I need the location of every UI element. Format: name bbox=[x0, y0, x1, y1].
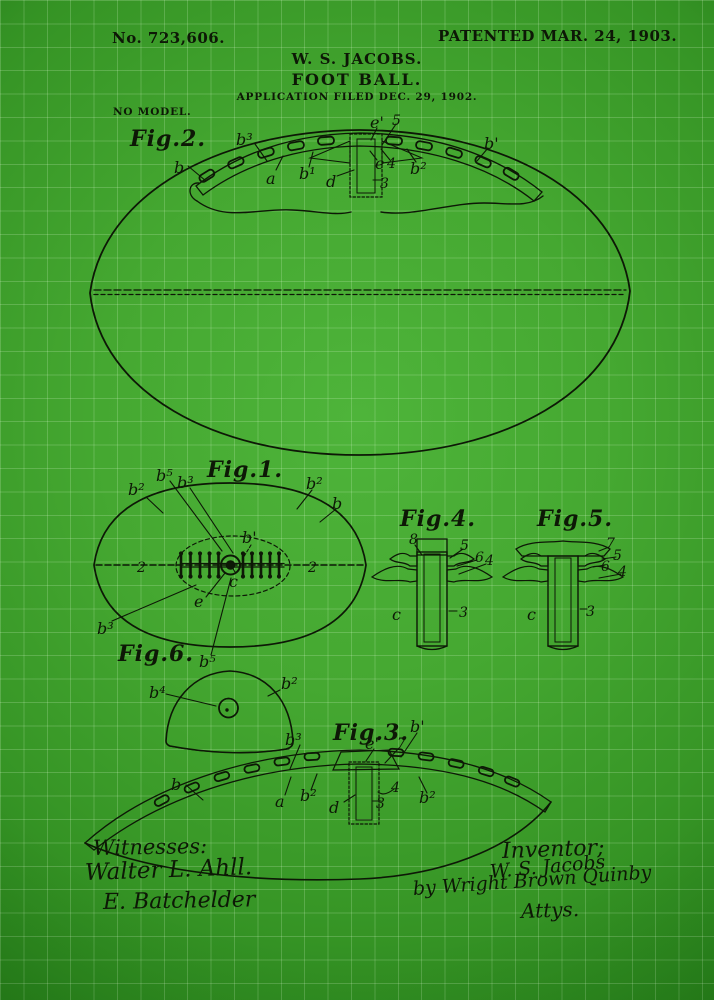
fig3-label-b3: b³ bbox=[285, 730, 302, 749]
fig1-label-b5-bottom: b⁵ bbox=[199, 652, 216, 671]
fig2-label-b-prime: b' bbox=[484, 134, 499, 153]
fig1-label-e: e bbox=[194, 592, 203, 611]
fig2-label-b1: b¹ bbox=[299, 164, 316, 183]
fig1-label-b2-top-left: b² bbox=[128, 480, 145, 499]
fig1-valve-center bbox=[226, 560, 236, 570]
fig4-stem bbox=[417, 552, 447, 646]
fig1-label-c: c bbox=[229, 572, 238, 591]
fig3-valve-outer bbox=[349, 762, 379, 824]
fig6-hole-dot bbox=[225, 708, 228, 711]
fig2-label-d: d bbox=[326, 172, 336, 191]
fig5-label-4: 4 bbox=[617, 564, 627, 580]
fig1-label-b3-bottom: b³ bbox=[97, 619, 114, 638]
witness2-signature: E. Batchelder bbox=[103, 887, 256, 915]
fig2-label-4: 4 bbox=[386, 156, 396, 172]
fig1-label-2-right: 2 bbox=[307, 560, 317, 576]
fig6-title: Fig.6. bbox=[117, 641, 194, 667]
fig4-drawing: Fig.4. 8 5 6 4 c 3 bbox=[372, 506, 494, 650]
fig1-label-b-right: b bbox=[332, 494, 342, 513]
fig6-label-b4: b⁴ bbox=[149, 683, 166, 702]
fig1-title: Fig.1. bbox=[206, 457, 283, 483]
fig2-leader-lines bbox=[188, 124, 488, 181]
fig4-label-6: 6 bbox=[475, 550, 484, 566]
fig2-title: Fig.2. bbox=[129, 126, 206, 152]
fig5-label-6: 6 bbox=[601, 559, 610, 575]
fig5-label-3: 3 bbox=[586, 604, 595, 620]
fig4-label-5: 5 bbox=[460, 538, 469, 554]
fig1-label-2-left: 2 bbox=[136, 560, 146, 576]
fig5-title: Fig.5. bbox=[536, 506, 613, 532]
fig1-label-b3-top: b³ bbox=[177, 473, 194, 492]
fig2-label-b: b bbox=[174, 158, 184, 177]
attorney-title: Attys. bbox=[521, 897, 580, 923]
fig3-label-b2-right: b² bbox=[419, 788, 436, 807]
fig3-label-e-prime: e' bbox=[365, 734, 379, 753]
patent-blueprint-page: No. 723,606. PATENTED MAR. 24, 1903. W. … bbox=[0, 0, 714, 1000]
fig5-drawing: Fig.5. 7 5 6 4 c 3 bbox=[503, 506, 627, 650]
fig2-label-3: 3 bbox=[380, 176, 389, 192]
fig4-label-4: 4 bbox=[484, 553, 494, 569]
fig4-label-c: c bbox=[392, 605, 401, 624]
fig2-label-b2: b² bbox=[410, 159, 427, 178]
fig3-label-3: 3 bbox=[376, 796, 385, 812]
fig5-stem-bore bbox=[555, 558, 571, 642]
fig2-band-end-curl bbox=[190, 183, 199, 201]
fig3-label-b-prime: b' bbox=[410, 717, 425, 736]
fig1-drawing: Fig.1. b² b⁵ b³ b² b b' c e 2 2 b³ b⁵ bbox=[94, 457, 366, 671]
fig6-bottom-edge bbox=[169, 746, 289, 753]
fig6-patch bbox=[166, 671, 293, 753]
fig2-valve-bore bbox=[357, 139, 375, 193]
fig2-label-e-prime: e' bbox=[370, 113, 384, 132]
fig2-label-b3: b³ bbox=[236, 130, 253, 149]
fig6-label-b2: b² bbox=[281, 674, 298, 693]
fig2-drawing: Fig.2. b³ b a b¹ d 3 e' 5 e 4 b² b' bbox=[90, 113, 630, 455]
fig2-label-e: e bbox=[375, 154, 384, 173]
fig3-label-d: d bbox=[329, 798, 339, 817]
fig2-label-a: a bbox=[266, 169, 276, 188]
fig4-label-3: 3 bbox=[459, 605, 468, 621]
fig6-leader-lines bbox=[166, 690, 280, 706]
fig2-ball-outline bbox=[90, 130, 630, 455]
fig5-label-5: 5 bbox=[613, 548, 622, 564]
fig2-cover-mouth-line bbox=[197, 196, 543, 214]
fig3-label-b: b bbox=[171, 775, 181, 794]
fig3-label-a: a bbox=[275, 792, 285, 811]
fig3-valve-bore bbox=[356, 767, 372, 820]
fig4-label-8: 8 bbox=[409, 532, 418, 548]
fig1-label-b-prime: b' bbox=[242, 528, 257, 547]
fig6-hole-outline bbox=[219, 699, 238, 718]
fig3-label-b2-left: b² bbox=[300, 786, 317, 805]
fig3-label-7: 7 bbox=[397, 736, 406, 752]
fig1-label-b5-top: b⁵ bbox=[156, 466, 173, 485]
fig1-label-b2-top-right: b² bbox=[306, 474, 323, 493]
fig5-label-c: c bbox=[527, 605, 536, 624]
fig4-stem-bore bbox=[424, 554, 440, 642]
fig3-label-4: 4 bbox=[390, 780, 400, 796]
fig5-stem bbox=[548, 556, 578, 646]
fig2-label-5: 5 bbox=[392, 113, 401, 129]
fig4-title: Fig.4. bbox=[399, 506, 476, 532]
